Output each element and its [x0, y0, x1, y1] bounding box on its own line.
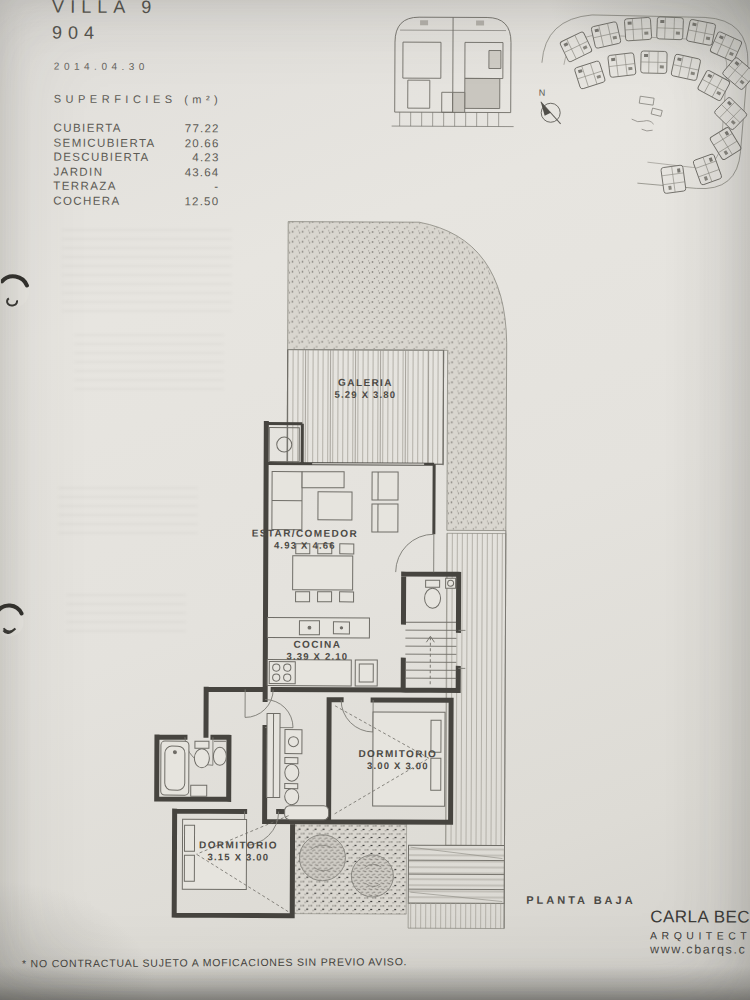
superficies-label: DESCUBIERTA — [53, 150, 149, 165]
superficies-label: TERRAZA — [53, 179, 117, 194]
superficies-table: CUBIERTA 77.22 SEMICUBIERTA 20.66 DESCUB… — [53, 121, 219, 209]
architect-role: ARQUITECT — [650, 929, 750, 942]
room-label-cocina: COCINA 3.39 X 2.10 — [286, 639, 348, 662]
architect-name: CARLA BECHE — [650, 907, 750, 928]
floor-plan — [156, 221, 507, 929]
bathroom1-fixtures — [161, 741, 227, 796]
architect-website: www.cbarqs.c — [650, 942, 750, 957]
plan-title: PLANTA BAJA — [526, 894, 635, 906]
sheet-number: 904 — [52, 23, 100, 44]
room-dims: 3.15 X 3.00 — [199, 851, 278, 862]
room-label-dormitorio-1: DORMITORIO 3.00 X 3.00 — [358, 748, 437, 771]
room-name: GALERIA — [335, 377, 397, 388]
room-dims: 3.39 X 2.10 — [286, 651, 348, 662]
bedroom2-furniture — [182, 815, 288, 911]
superficies-label: SEMICUBIERTA — [54, 135, 156, 150]
room-label-dormitorio-2: DORMITORIO 3.15 X 3.00 — [199, 839, 278, 862]
superficies-value: 43.64 — [185, 165, 220, 180]
superficies-row: CUBIERTA 77.22 — [54, 121, 220, 136]
binder-hole — [0, 276, 29, 307]
room-name: ESTAR/COMEDOR — [252, 527, 358, 538]
room-dims: 4.93 X 4.66 — [252, 539, 358, 550]
superficies-row: DESCUBIERTA 4.23 — [53, 150, 219, 165]
room-label-estar-comedor: ESTAR/COMEDOR 4.93 X 4.66 — [252, 527, 358, 550]
bathroom2-fixtures — [267, 714, 329, 820]
galeria-deck — [287, 350, 443, 465]
superficies-row: JARDIN 43.64 — [53, 164, 219, 179]
room-dims: 5.29 X 3.80 — [335, 389, 397, 400]
architect-block: CARLA BECHE ARQUITECT www.cbarqs.c — [650, 907, 750, 957]
sheet-title: VILLA 9 — [52, 0, 157, 18]
superficies-value: 20.66 — [185, 136, 220, 151]
superficies-value: 12.50 — [184, 194, 219, 209]
superficies-label: CUBIERTA — [54, 121, 122, 136]
sheet-date: 2014.04.30 — [54, 61, 149, 72]
superficies-row: SEMICUBIERTA 20.66 — [54, 135, 220, 150]
north-compass-icon — [541, 102, 561, 124]
key-plan — [392, 17, 514, 127]
superficies-label: COCHERA — [53, 194, 120, 209]
site-plan-amenities — [632, 96, 663, 131]
superficies-value: 4.23 — [192, 150, 219, 165]
superficies-row: COCHERA 12.50 — [53, 194, 219, 209]
room-name: DORMITORIO — [199, 839, 278, 850]
courtyard — [294, 824, 406, 914]
room-name: DORMITORIO — [358, 748, 437, 759]
north-label: N — [539, 88, 547, 98]
room-dims: 3.00 X 3.00 — [358, 760, 437, 771]
superficies-title: SUPERFICIES (m²) — [54, 93, 223, 106]
binder-hole — [0, 605, 24, 636]
superficies-row: TERRAZA - — [53, 179, 219, 194]
footer-note: * NO CONTRACTUAL SUJETO A MOFICACIONES S… — [22, 955, 407, 969]
photographed-plan-sheet: VILLA 9 904 2014.04.30 SUPERFICIES (m²) … — [0, 0, 750, 1000]
room-label-galeria: GALERIA 5.29 X 3.80 — [335, 377, 397, 400]
room-name: COCINA — [286, 639, 348, 650]
superficies-label: JARDIN — [53, 164, 103, 179]
paper-content: VILLA 9 904 2014.04.30 SUPERFICIES (m²) … — [0, 0, 750, 1000]
superficies-value: - — [214, 180, 219, 195]
superficies-value: 77.22 — [185, 121, 220, 136]
site-plan — [540, 15, 750, 194]
